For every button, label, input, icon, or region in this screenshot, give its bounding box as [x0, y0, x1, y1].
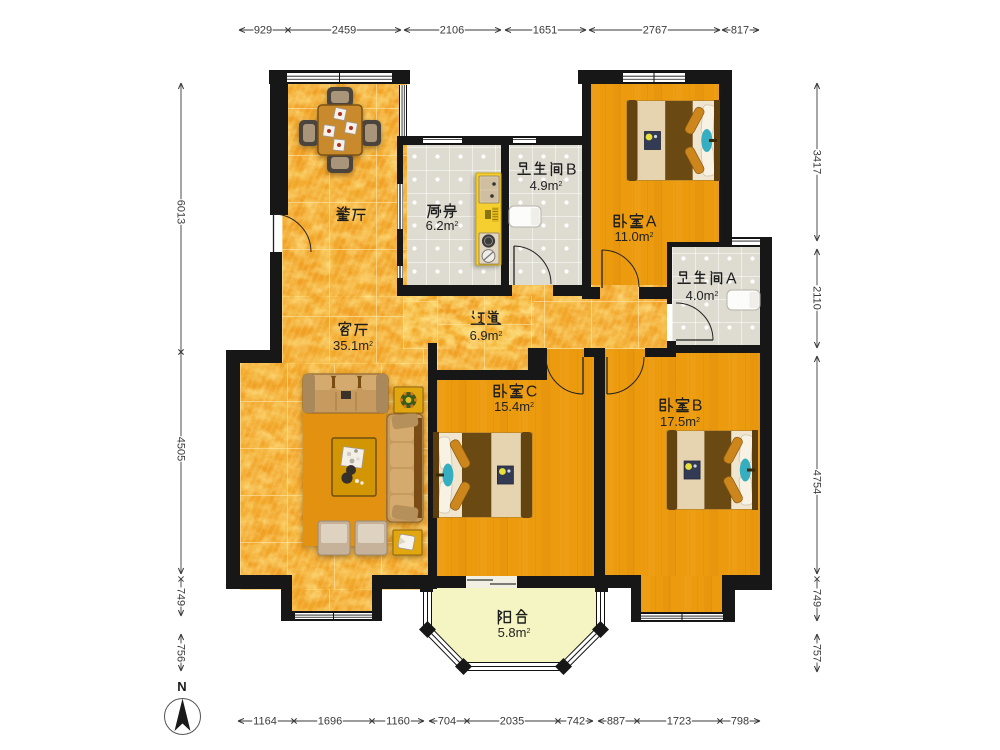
- svg-text:17.5m2: 17.5m2: [660, 414, 700, 429]
- svg-text:1164: 1164: [253, 716, 277, 728]
- svg-text:N: N: [177, 679, 186, 694]
- svg-text:6.2m2: 6.2m2: [426, 218, 459, 233]
- svg-text:6013: 6013: [174, 200, 186, 224]
- svg-text:B: B: [692, 398, 703, 415]
- svg-text:35.1m2: 35.1m2: [333, 338, 373, 353]
- svg-text:887: 887: [607, 716, 625, 728]
- svg-text:B: B: [566, 162, 577, 179]
- svg-text:2106: 2106: [440, 25, 464, 37]
- svg-text:1696: 1696: [318, 716, 342, 728]
- svg-text:2035: 2035: [500, 716, 524, 728]
- svg-text:757: 757: [810, 644, 822, 662]
- svg-text:6.9m2: 6.9m2: [470, 328, 503, 343]
- svg-text:749: 749: [810, 589, 822, 607]
- svg-text:2110: 2110: [810, 286, 822, 310]
- svg-text:4.0m2: 4.0m2: [686, 288, 719, 303]
- svg-text:704: 704: [438, 716, 456, 728]
- svg-text:1723: 1723: [667, 716, 691, 728]
- svg-text:742: 742: [567, 716, 585, 728]
- svg-text:4754: 4754: [810, 470, 822, 494]
- svg-text:15.4m2: 15.4m2: [494, 399, 534, 414]
- svg-text:756: 756: [174, 644, 186, 662]
- svg-text:4505: 4505: [174, 437, 186, 461]
- svg-text:929: 929: [254, 25, 272, 37]
- svg-text:4.9m2: 4.9m2: [530, 178, 563, 193]
- svg-text:1160: 1160: [386, 716, 410, 728]
- svg-text:798: 798: [731, 716, 749, 728]
- svg-text:11.0m2: 11.0m2: [614, 229, 653, 244]
- svg-text:749: 749: [174, 588, 186, 606]
- svg-text:2459: 2459: [332, 25, 356, 37]
- svg-text:2767: 2767: [643, 25, 667, 37]
- svg-text:817: 817: [731, 25, 749, 37]
- svg-text:1651: 1651: [533, 25, 557, 37]
- svg-text:3417: 3417: [810, 150, 822, 174]
- svg-text:A: A: [726, 271, 737, 288]
- svg-text:5.8m2: 5.8m2: [498, 625, 531, 640]
